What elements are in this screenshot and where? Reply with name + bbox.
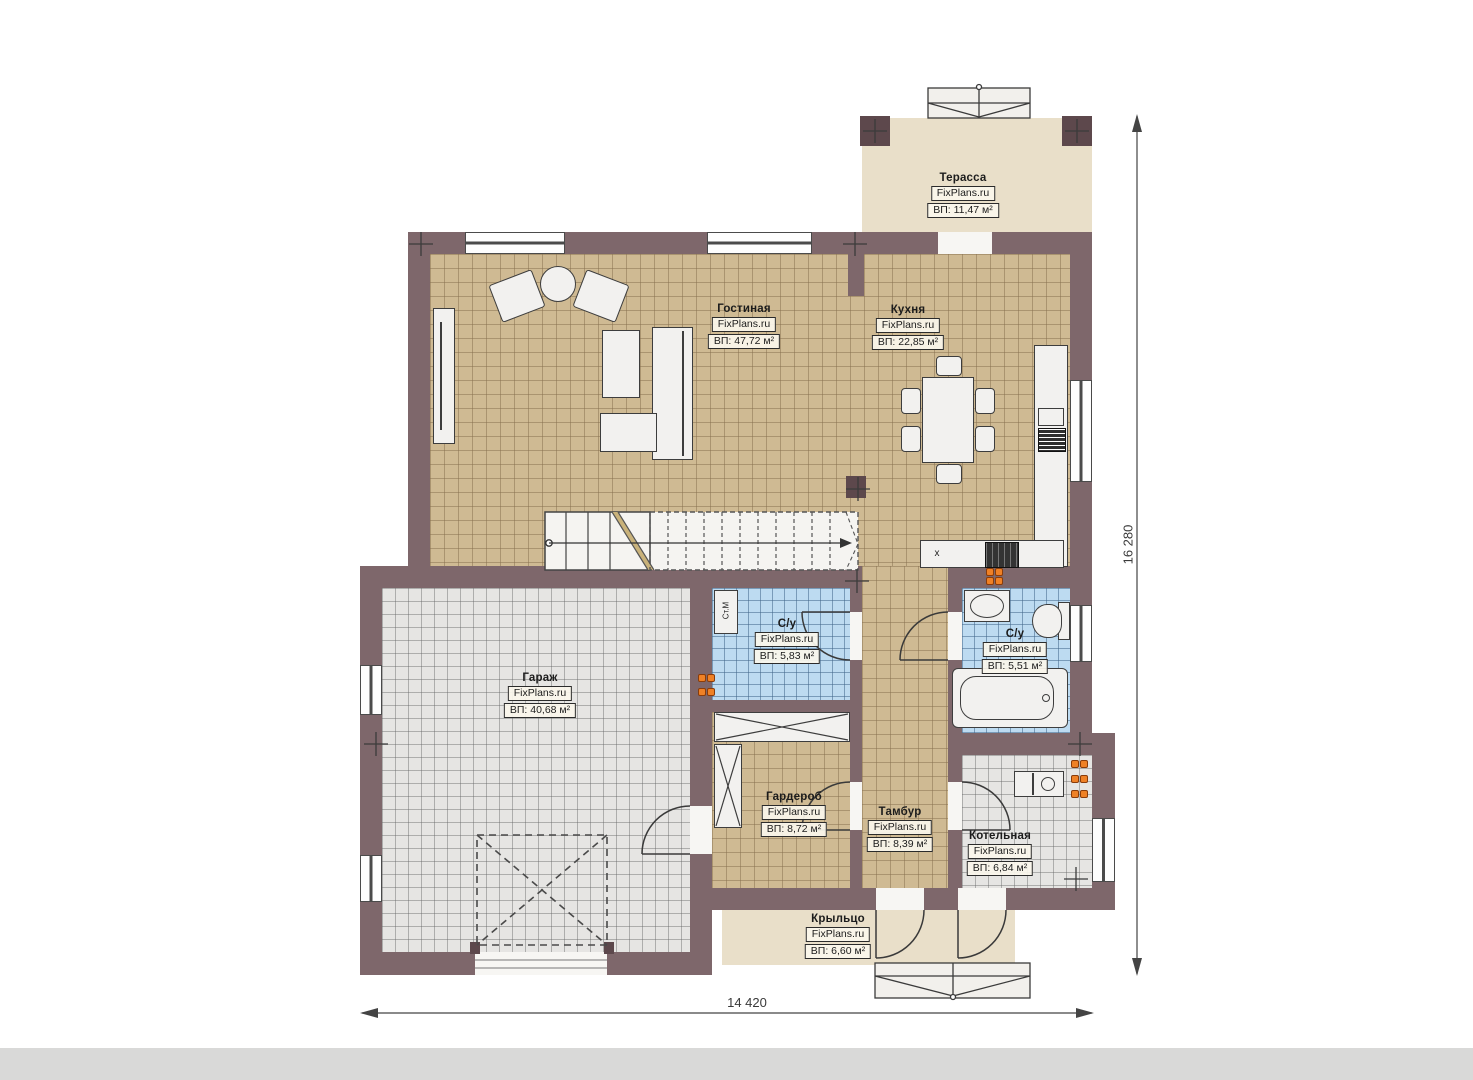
radiator-dot <box>986 577 994 585</box>
window <box>1070 380 1092 482</box>
room-watermark: FixPlans.ru <box>931 186 996 201</box>
room-name: Кухня <box>891 304 926 316</box>
wall-segment <box>408 232 430 588</box>
staircase <box>545 512 858 570</box>
room-area: ВП: 8,72 м² <box>761 822 827 837</box>
chair <box>975 426 995 452</box>
room-name: Гараж <box>522 672 557 684</box>
tv-cabinet-line <box>440 322 442 430</box>
window <box>465 232 565 254</box>
room-watermark: FixPlans.ru <box>508 686 573 701</box>
room-area: ВП: 22,85 м² <box>872 335 944 350</box>
room-label-kitchen: Кухня FixPlans.ru ВП: 22,85 м² <box>872 304 944 350</box>
window <box>1092 818 1115 882</box>
floor-plan-canvas: x Ст.М <box>0 0 1473 1080</box>
room-area: ВП: 11,47 м² <box>927 203 999 218</box>
radiator-dot <box>698 688 706 696</box>
sofa-chaise <box>600 413 657 452</box>
stove <box>985 542 1019 568</box>
room-label-boiler: Котельная FixPlans.ru ВП: 6,84 м² <box>967 830 1033 876</box>
garage-door-jamb <box>604 942 614 954</box>
kitchen-sink-basin <box>1038 428 1066 452</box>
coffee-table <box>602 330 640 398</box>
room-name: Тамбур <box>879 806 922 818</box>
room-area: ВП: 40,68 м² <box>504 703 576 718</box>
room-watermark: FixPlans.ru <box>968 844 1033 859</box>
radiator-dot <box>1071 775 1079 783</box>
wall-segment <box>712 700 850 712</box>
bathtub-inner <box>960 676 1054 720</box>
chair <box>901 388 921 414</box>
washing-machine-label: Ст.М <box>722 595 731 627</box>
wall-segment <box>360 566 382 975</box>
door-opening <box>850 782 862 830</box>
terrace-post <box>860 116 890 146</box>
chair <box>901 426 921 452</box>
room-watermark: FixPlans.ru <box>755 632 820 647</box>
door-opening <box>876 888 924 910</box>
tv-cabinet <box>433 308 455 444</box>
room-label-bath-right: С/у FixPlans.ru ВП: 5,51 м² <box>982 628 1048 674</box>
room-area: ВП: 5,51 м² <box>982 659 1048 674</box>
radiator-dot <box>1080 790 1088 798</box>
garage-door-opening <box>475 952 607 975</box>
room-watermark: FixPlans.ru <box>762 805 827 820</box>
window <box>1070 605 1092 662</box>
chair <box>936 356 962 376</box>
room-label-bath-left: С/у FixPlans.ru ВП: 5,83 м² <box>754 618 820 664</box>
terrace-door-opening <box>938 232 992 254</box>
sofa-back-line <box>682 331 684 456</box>
room-watermark: FixPlans.ru <box>712 317 777 332</box>
sink-bowl <box>970 594 1004 618</box>
wall-segment <box>848 254 864 296</box>
door-opening <box>850 612 862 660</box>
window <box>707 232 812 254</box>
room-watermark: FixPlans.ru <box>806 927 871 942</box>
side-table <box>540 266 576 302</box>
radiator-dot <box>707 674 715 682</box>
door-opening <box>958 888 1006 910</box>
radiator-dot <box>707 688 715 696</box>
room-name: Котельная <box>969 830 1031 842</box>
boiler-dial <box>1041 777 1055 791</box>
terrace-post <box>1062 116 1092 146</box>
porch-steps <box>875 963 1030 1000</box>
window <box>360 665 382 715</box>
dining-table <box>922 377 974 463</box>
room-name: Терасса <box>939 172 986 184</box>
radiator-dot <box>995 577 1003 585</box>
door-opening <box>690 806 712 854</box>
dimension-height-label: 16 280 <box>1121 515 1136 575</box>
room-area: ВП: 6,84 м² <box>967 861 1033 876</box>
terrace-steps <box>928 85 1030 119</box>
radiator-dot <box>1080 775 1088 783</box>
room-area: ВП: 47,72 м² <box>708 334 780 349</box>
dimension-width-label: 14 420 <box>687 995 807 1010</box>
window <box>360 855 382 902</box>
wall-segment <box>948 566 1070 588</box>
room-name: С/у <box>1006 628 1025 640</box>
wall-segment <box>962 733 1115 755</box>
radiator-dot <box>995 568 1003 576</box>
boiler-unit <box>1014 771 1064 797</box>
room-name: Крыльцо <box>811 913 865 925</box>
room-label-wardrobe: Гардероб FixPlans.ru ВП: 8,72 м² <box>761 791 827 837</box>
radiator-dot <box>1071 760 1079 768</box>
radiator-dot <box>698 674 706 682</box>
kitchen-cabinet-x: x <box>922 544 952 564</box>
radiator-dot <box>1080 760 1088 768</box>
wall-segment <box>690 588 712 975</box>
room-label-terrace: Терасса FixPlans.ru ВП: 11,47 м² <box>927 172 999 218</box>
boiler-divider <box>1032 773 1034 795</box>
wardrobe-cabinet <box>714 712 850 742</box>
room-area: ВП: 8,39 м² <box>867 837 933 852</box>
room-label-porch: Крыльцо FixPlans.ru ВП: 6,60 м² <box>805 913 871 959</box>
kitchen-sink <box>1038 408 1064 426</box>
column-stub <box>846 476 866 498</box>
bathtub-drain <box>1042 694 1050 702</box>
room-name: Гостиная <box>717 303 771 315</box>
chair <box>936 464 962 484</box>
room-area: ВП: 5,83 м² <box>754 649 820 664</box>
room-label-garage: Гараж FixPlans.ru ВП: 40,68 м² <box>504 672 576 718</box>
room-watermark: FixPlans.ru <box>868 820 933 835</box>
room-watermark: FixPlans.ru <box>983 642 1048 657</box>
sofa <box>652 327 693 460</box>
door-opening <box>948 612 962 660</box>
garage-floor <box>382 588 690 952</box>
chair <box>975 388 995 414</box>
kitchen-counter-right <box>1034 345 1068 567</box>
page-bottom-band <box>0 1048 1473 1080</box>
room-watermark: FixPlans.ru <box>876 318 941 333</box>
door-opening <box>948 782 962 830</box>
room-label-vestibule: Тамбур FixPlans.ru ВП: 8,39 м² <box>867 806 933 852</box>
wardrobe-cabinet <box>714 744 742 828</box>
room-label-living: Гостиная FixPlans.ru ВП: 47,72 м² <box>708 303 780 349</box>
radiator-dot <box>986 568 994 576</box>
garage-door-jamb <box>470 942 480 954</box>
room-area: ВП: 6,60 м² <box>805 944 871 959</box>
radiator-dot <box>1071 790 1079 798</box>
room-name: Гардероб <box>766 791 822 803</box>
room-name: С/у <box>778 618 797 630</box>
